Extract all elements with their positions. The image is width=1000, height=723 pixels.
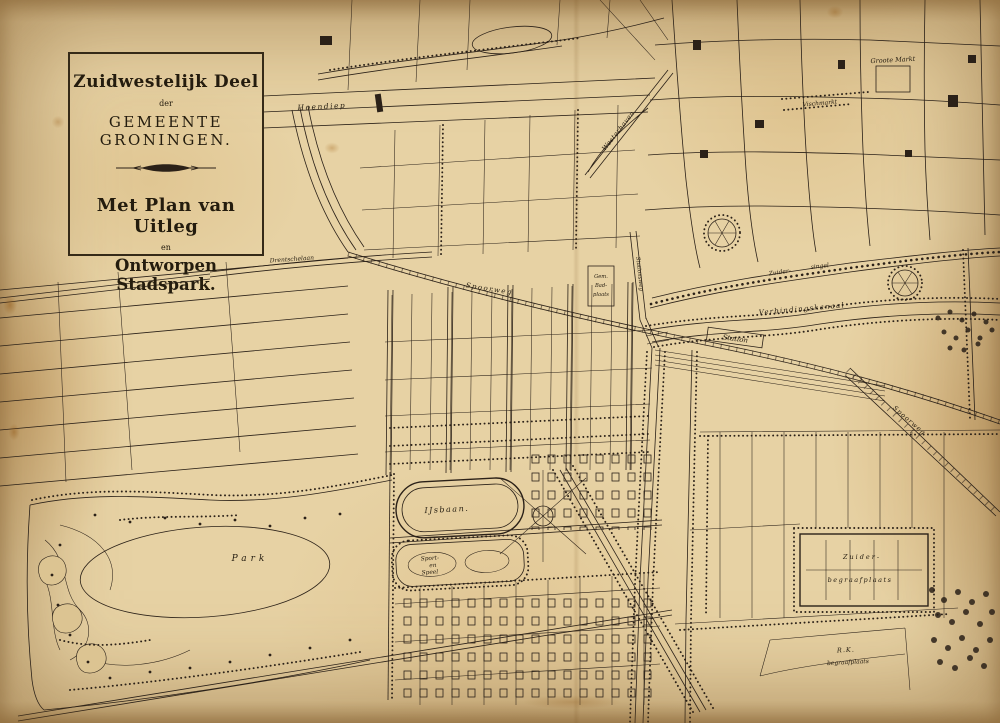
label-hoendiep: Hoendiep — [296, 101, 346, 113]
zuider-begraafplaats — [794, 528, 934, 612]
label-vischmarkt: Vischmarkt — [802, 98, 838, 108]
label-rk-2: begraafplaats — [827, 658, 869, 667]
label-sport-2: en — [429, 563, 437, 569]
label-spoorweg-west: Spoorweg — [465, 281, 513, 296]
cartouche-plan-title: Met Plan van Uitleg — [70, 195, 262, 237]
inner-city-blocks — [585, 0, 1000, 268]
plan-grid-north — [360, 105, 640, 258]
label-gem-bad-2: Bad- — [594, 283, 607, 289]
cartouche-en: en — [161, 243, 171, 252]
cartouche-municipality: GEMEENTE GRONINGEN. — [70, 113, 262, 149]
label-zuidersingel-1: Zuider- — [767, 268, 791, 278]
map-labels: Hoendiep Westerhaven Groote Markt Vischm… — [231, 55, 928, 667]
cartouche-der: der — [159, 99, 173, 108]
map-canvas: Hoendiep Westerhaven Groote Markt Vischm… — [0, 0, 1000, 723]
label-zuidersingel-2: singel — [810, 262, 829, 271]
label-spoorweg-oost: Spoorweg — [891, 404, 927, 437]
label-gem-bad-1: Gem. — [594, 274, 608, 280]
flourish-ornament — [111, 160, 221, 179]
label-westerhaven: Westerhaven — [600, 109, 636, 152]
label-sport-3: Speel — [422, 570, 439, 577]
label-zuider-begraafplaats-1: Zuider- — [842, 553, 881, 561]
villa-district — [390, 452, 713, 712]
label-gem-bad-3: plaats — [593, 292, 609, 298]
cartouche-region-title: Zuidwestelijk Deel — [73, 72, 258, 92]
woods-clusters — [929, 310, 995, 672]
label-sport-1: Sport- — [421, 556, 440, 563]
cartouche-park-title: Ontworpen Stadspark. — [70, 256, 262, 294]
sport-en-speel — [391, 534, 529, 591]
label-park: Park — [231, 554, 269, 564]
label-rk-1: R.K. — [836, 646, 855, 655]
plan-grid-south — [385, 282, 652, 475]
label-ijsbaan: IJsbaan. — [423, 504, 469, 515]
label-groote-markt: Groote Markt — [870, 55, 916, 65]
north-suburb — [318, 0, 668, 90]
label-stationsweg: Stationsweg — [634, 256, 644, 291]
title-cartouche: Zuidwestelijk Deel der GEMEENTE GRONINGE… — [68, 52, 264, 256]
label-zuider-begraafplaats-2: begraafplaats — [828, 576, 893, 584]
